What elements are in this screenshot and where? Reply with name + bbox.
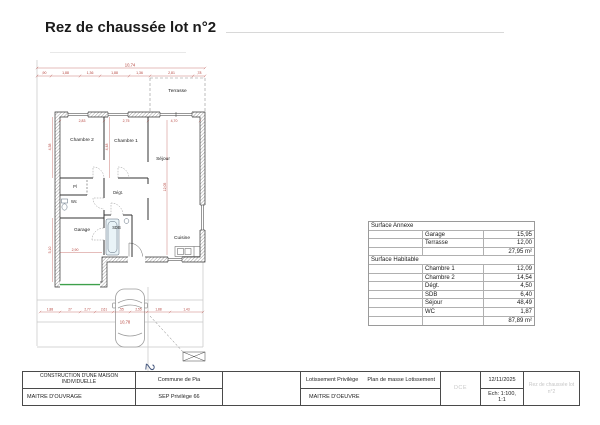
room-label-terrasse: Terrasse <box>168 88 187 94</box>
titleblock-sheet-cell: Rez de chaussée lot n°2 <box>524 372 579 405</box>
surface-section-annexe: Surface Annexe <box>369 222 534 231</box>
dim-drive-seg: ,55 <box>119 308 124 312</box>
spacer-cell <box>369 308 423 316</box>
dim-top-seg: 1,36 <box>136 71 143 75</box>
dim-room-width: 4,70 <box>171 119 178 123</box>
plan-names: Lotissement Privilège Plan de masse Loti… <box>301 372 440 388</box>
spacer-cell <box>423 317 484 326</box>
floor-plan-canvas: 10,74 ,90 1,88 1,36 1,88 1,36 2,81 ,78 2… <box>25 50 245 380</box>
dim-top-seg: 1,88 <box>62 71 69 75</box>
dim-drive-seg: 1,88 <box>155 308 161 312</box>
dim-top-seg: 2,81 <box>168 71 175 75</box>
spacer-cell <box>369 299 423 307</box>
spacer-cell <box>369 274 423 282</box>
lotissement-name: Lotissement Privilège <box>306 377 358 383</box>
drawing-sheet: { "page": { "title": "Rez de chaussée lo… <box>0 0 600 425</box>
dim-top-seg: ,90 <box>42 71 47 75</box>
row-label: Chambre 1 <box>423 265 484 273</box>
row-value: 15,95 <box>484 231 534 239</box>
date: 12/11/2025 <box>481 372 523 388</box>
dim-drive-total: 10,78 <box>120 320 131 325</box>
terrace-outline <box>150 78 205 112</box>
project-name: CONSTRUCTION D'UNE MAISON INDIVIDUELLE <box>23 372 135 388</box>
dim-room-width: 2,83 <box>79 119 86 123</box>
phase: DCE <box>441 372 480 405</box>
row-value: 1,87 <box>484 308 534 316</box>
row-value: 6,40 <box>484 291 534 299</box>
total-value: 27,95 m² <box>484 248 534 256</box>
company: SEP Privilège 66 <box>136 388 222 405</box>
sheet-top-rule <box>226 32 504 33</box>
table-row: SDB6,40 <box>369 291 534 300</box>
sheet-name: Rez de chaussée lot n°2 <box>524 372 579 405</box>
spacer-cell <box>369 239 423 247</box>
dim-top-seg: 1,36 <box>87 71 94 75</box>
section-label: Surface Habitable <box>371 256 419 264</box>
table-row: Séjour48,49 <box>369 299 534 308</box>
room-label-sdb: SDB <box>112 225 121 230</box>
titleblock-project-cell: CONSTRUCTION D'UNE MAISON INDIVIDUELLE M… <box>23 372 136 405</box>
dim-drive-seg: 2,77 <box>84 308 90 312</box>
commune: Commune de Pia <box>136 372 222 388</box>
dim-left-lower: 5,10 <box>48 247 52 254</box>
row-label: SDB <box>423 291 484 299</box>
spacer-cell <box>423 248 484 256</box>
room-label-pl: Pl <box>73 184 77 189</box>
row-label: WC <box>423 308 484 316</box>
row-value: 12,00 <box>484 239 534 247</box>
spacer-cell <box>369 248 423 256</box>
table-row: Dégt.4,50 <box>369 282 534 291</box>
car-top-view <box>113 289 148 347</box>
room-label-garage: Garage <box>74 227 90 233</box>
room-label-chambre1: Chambre 1 <box>114 138 138 144</box>
room-label-sejour: Séjour <box>156 156 170 162</box>
row-value: 48,49 <box>484 299 534 307</box>
section-label: Surface Annexe <box>371 222 413 230</box>
table-row: Chambre 214,54 <box>369 274 534 283</box>
table-row: Chambre 112,09 <box>369 265 534 274</box>
table-row: Garage15,95 <box>369 231 534 240</box>
row-label: Garage <box>423 231 484 239</box>
table-total-row: 87,89 m² <box>369 317 534 326</box>
room-label-chambre2: Chambre 2 <box>70 137 94 143</box>
titleblock-commune-cell: Commune de Pia SEP Privilège 66 <box>136 372 223 405</box>
total-value: 87,89 m² <box>484 317 534 326</box>
row-label: Chambre 2 <box>423 274 484 282</box>
dim-mid-vertical: 4,48 <box>105 144 109 151</box>
row-label: Dégt. <box>423 282 484 290</box>
table-row: Terrasse12,00 <box>369 239 534 248</box>
dim-top-seg: 1,88 <box>111 71 118 75</box>
row-label: Séjour <box>423 299 484 307</box>
room-label-wc: Wc <box>71 199 77 204</box>
dim-room-width: 2,75 <box>123 119 130 123</box>
titleblock-phase-cell: DCE <box>441 372 481 405</box>
dim-sejour-vertical: 12,05 <box>163 183 167 192</box>
page-title: Rez de chaussée lot n°2 <box>45 19 216 36</box>
spacer-cell <box>369 282 423 290</box>
empty-cell <box>223 372 300 405</box>
row-value: 12,09 <box>484 265 534 273</box>
dim-drive-seg: 1,88 <box>47 308 53 312</box>
scale: Ech: 1:100, 1:1 <box>481 388 523 405</box>
entry-door <box>129 243 143 257</box>
row-label: Terrasse <box>423 239 484 247</box>
plan-title: Plan de masse Lotissement <box>367 377 435 383</box>
dim-top-total: 10,74 <box>125 63 136 68</box>
architect-role: MAITRE D'OEUVRE <box>301 388 440 405</box>
row-value: 4,50 <box>484 282 534 290</box>
dim-left-upper: 4,38 <box>48 144 52 151</box>
dim-drive-seg: 27 <box>68 308 72 312</box>
room-label-cuisine: Cuisine <box>174 235 190 241</box>
spacer-cell <box>369 265 423 273</box>
kitchen-counter <box>175 247 200 257</box>
surface-section-habitable: Surface Habitable <box>369 256 534 265</box>
titleblock-empty-cell <box>223 372 301 405</box>
spacer-cell <box>369 291 423 299</box>
row-value: 14,54 <box>484 274 534 282</box>
room-label-degt: Dégt. <box>113 190 123 195</box>
utility-connection <box>150 316 205 361</box>
dim-drive-seg: 1,43 <box>183 308 189 312</box>
dim-drive-seg: 2,55 <box>135 308 141 312</box>
titleblock-plan-cell: Lotissement Privilège Plan de masse Loti… <box>301 372 441 405</box>
surface-table: Surface Annexe Garage15,95 Terrasse12,00… <box>368 221 535 326</box>
dim-top-seg: ,78 <box>197 71 202 75</box>
owner-role: MAITRE D'OUVRAGE <box>23 388 135 405</box>
spacer-cell <box>369 317 423 326</box>
titleblock-date-cell: 12/11/2025 Ech: 1:100, 1:1 <box>481 372 524 405</box>
dim-garage-width: 2,90 <box>72 248 79 252</box>
dim-drive-seg: 2,61 <box>101 308 107 312</box>
table-row: WC1,87 <box>369 308 534 317</box>
spacer-cell <box>369 231 423 239</box>
table-total-row: 27,95 m² <box>369 248 534 257</box>
title-block: CONSTRUCTION D'UNE MAISON INDIVIDUELLE M… <box>22 371 580 406</box>
